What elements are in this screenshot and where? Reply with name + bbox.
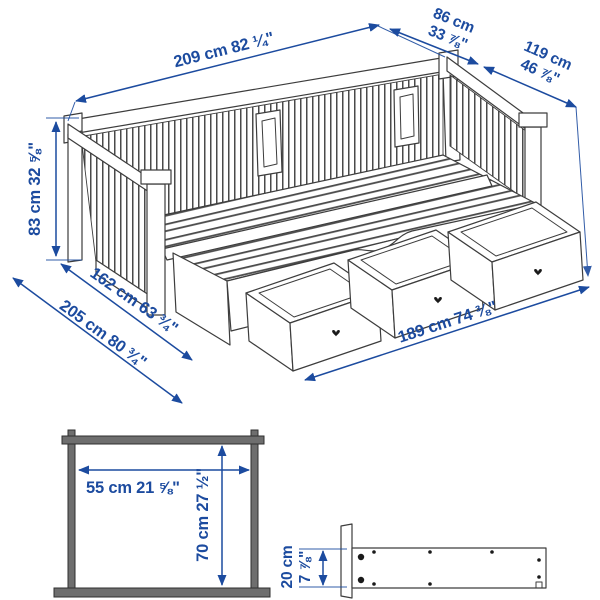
front-left-post (147, 184, 165, 315)
drawer-profile-diagram (341, 524, 546, 598)
product-dimension-diagram: 209 cm 82 ¼" 86 cm 33 ⅞" 119 cm 46 ⅞" 83… (0, 0, 600, 600)
clearance-right-post (251, 430, 258, 588)
clearance-top-rail (62, 436, 264, 444)
dim-label-drawer-height-line1: 20 cm (279, 546, 296, 589)
clearance-left-post (68, 430, 75, 588)
dim-label-length: 209 cm 82 ¼" (172, 29, 276, 71)
diagram-canvas: 209 cm 82 ¼" 86 cm 33 ⅞" 119 cm 46 ⅞" 83… (0, 0, 600, 600)
dim-label-clearance-width: 55 cm 21 ⅝" (86, 479, 180, 497)
clearance-base-plate (54, 588, 270, 597)
front-left-cap (141, 170, 171, 184)
profile-drawer-body (352, 548, 546, 588)
front-right-cap (519, 113, 547, 127)
dim-label-height: 83 cm 32 ⅝" (26, 142, 44, 236)
underbed-clearance-diagram (54, 430, 270, 597)
dim-label-clearance-height: 70 cm 27 ½" (194, 468, 212, 562)
back-left-leg (68, 131, 82, 262)
dim-label-drawer-height-line2: 7 ⅞" (297, 551, 314, 583)
